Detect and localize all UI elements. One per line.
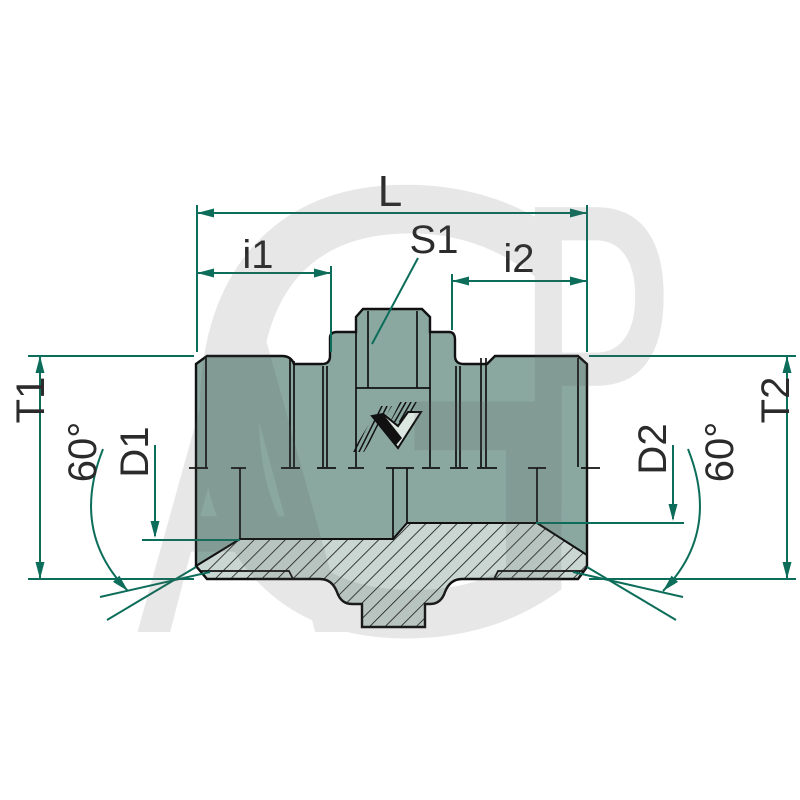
label-cone-angle-1: 60° (61, 422, 105, 483)
label-thread-od-2: T2 (754, 377, 798, 424)
technical-drawing: L i1 S1 i2 T1 60° D1 D2 60° T2 A G P (0, 0, 800, 800)
drawing-canvas: L i1 S1 i2 T1 60° D1 D2 60° T2 A G P (0, 0, 800, 800)
agp-watermark: A G P (135, 73, 673, 772)
label-cone-angle-2: 60° (698, 422, 742, 483)
label-thread-od-1: T1 (9, 377, 53, 424)
watermark-letter-p: P (508, 125, 673, 603)
